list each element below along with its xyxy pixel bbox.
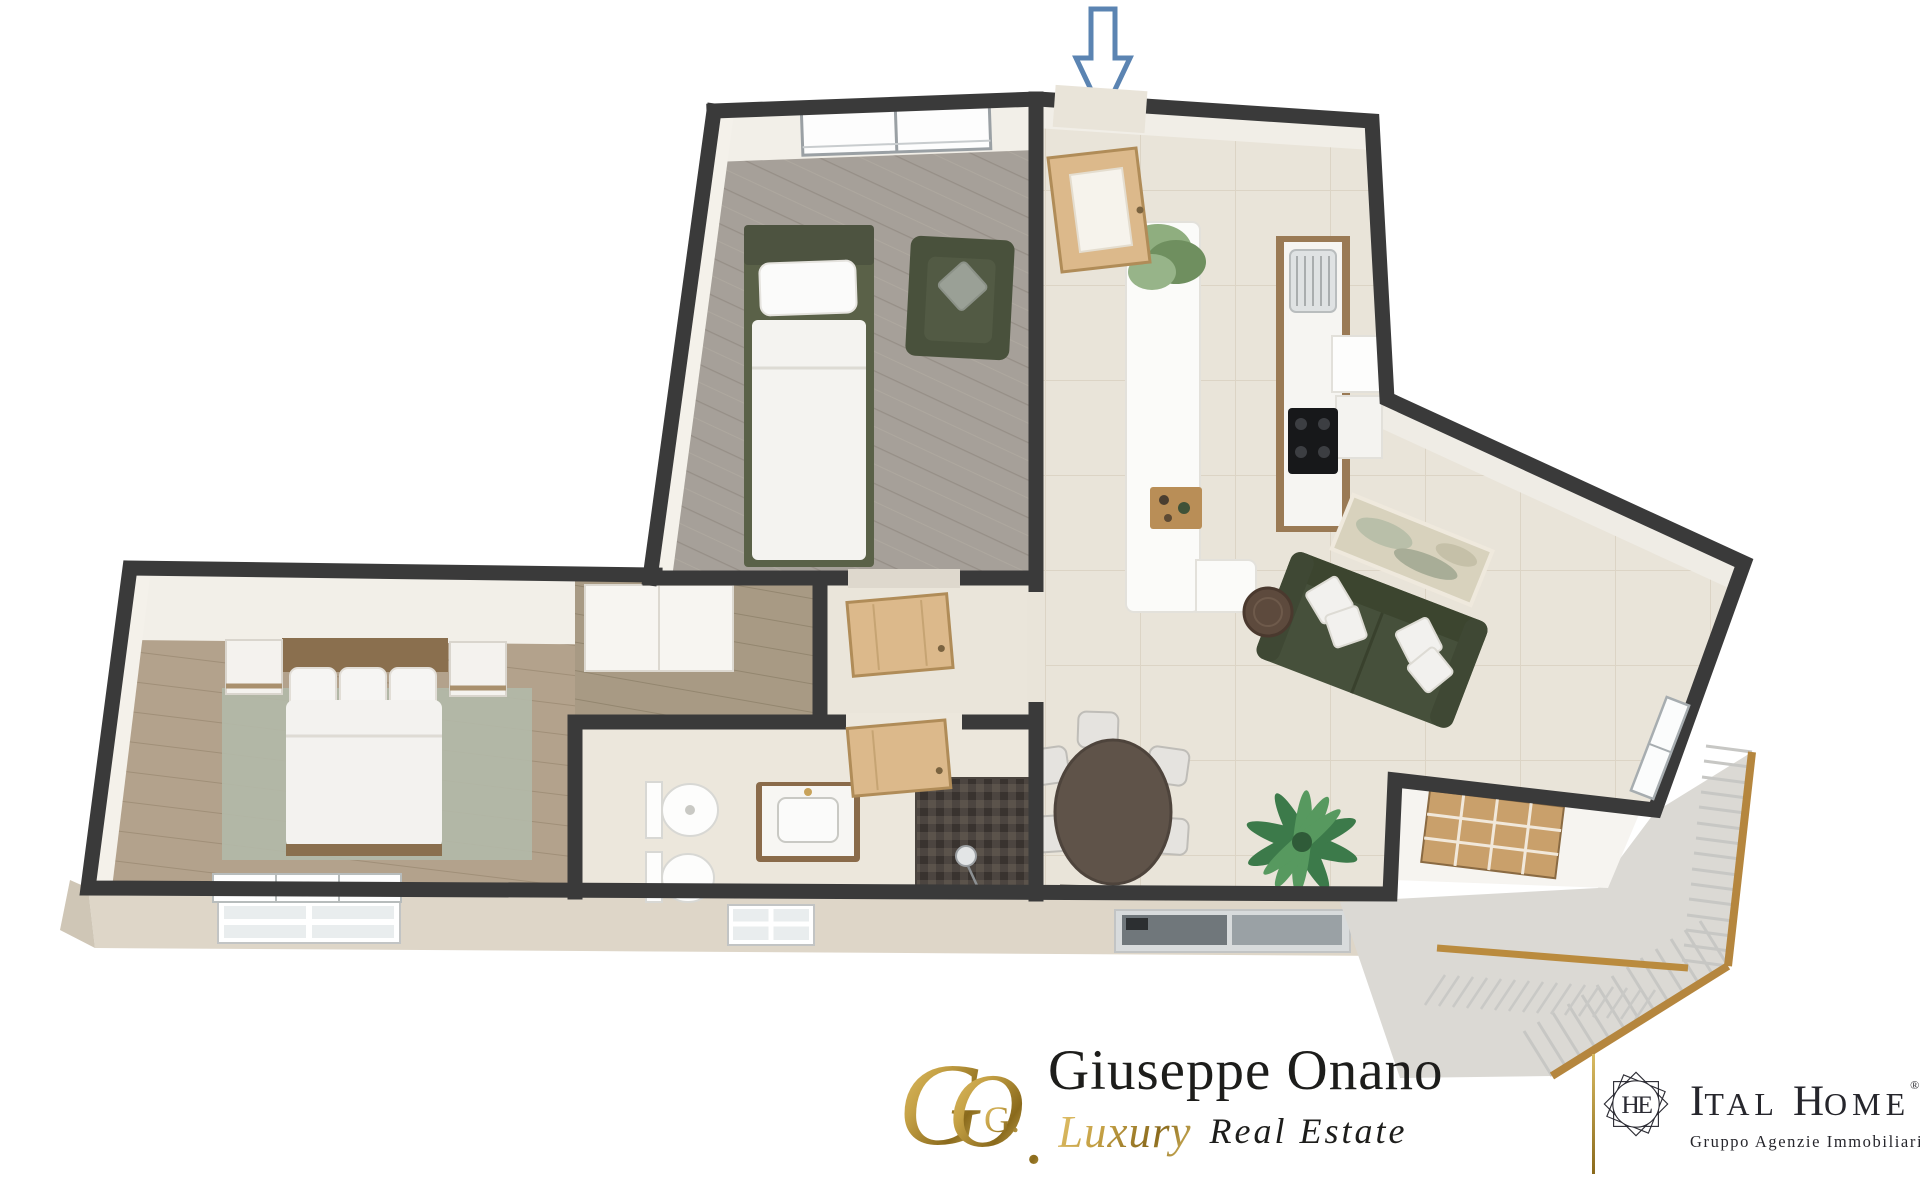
cooktop: [1288, 408, 1338, 474]
agent-name: Giuseppe Onano: [1048, 1038, 1444, 1103]
monogram-period: .: [1024, 1098, 1044, 1176]
bed-frame: [286, 844, 442, 856]
kitchen-appliance: [1336, 396, 1382, 458]
facade-window-bathroom: [728, 905, 814, 945]
cutting-board: [1150, 487, 1202, 529]
agent-monogram: G O G. .: [898, 1046, 1058, 1196]
shower: [916, 778, 1034, 896]
side-table: [1244, 588, 1292, 636]
facade-window-master: [218, 901, 400, 943]
single-bed: [744, 225, 874, 567]
bathroom-door: [847, 720, 951, 796]
bedroom2-door: [847, 594, 953, 676]
floor-plan-rendering: [0, 0, 1920, 1203]
emblem-monogram: HE: [1621, 1090, 1652, 1119]
dining-table: [1055, 740, 1171, 884]
facade-window-dining: [1115, 910, 1350, 952]
vanity-sink: [756, 782, 860, 862]
double-bed: [282, 638, 448, 856]
floor-plan-page: G O G. . Giuseppe Onano LuxuryReal Estat…: [0, 0, 1920, 1203]
agency-name-i: I: [1690, 1078, 1704, 1125]
registered-mark: ®: [1910, 1078, 1919, 1092]
kitchen-sink: [1290, 250, 1336, 312]
agent-tagline: LuxuryReal Estate: [1058, 1106, 1407, 1158]
tagline-real-estate: Real Estate: [1210, 1111, 1408, 1151]
agency-name: ITALHOME®: [1690, 1078, 1919, 1123]
bidet: [646, 782, 718, 838]
door-handle: [1137, 207, 1144, 214]
shower-head: [956, 846, 976, 866]
tagline-luxury: Luxury: [1058, 1107, 1192, 1157]
faucet: [804, 788, 812, 796]
bedroom2-opening: [848, 569, 960, 588]
duvet: [286, 700, 442, 848]
agency-name-tal: TAL: [1704, 1086, 1779, 1122]
headboard: [282, 638, 448, 672]
kitchen-appliance: [1332, 336, 1380, 392]
agency-subtitle: Gruppo Agenzie Immobiliari: [1690, 1132, 1920, 1152]
agency-name-h: H: [1793, 1078, 1824, 1125]
gold-divider: [1592, 1054, 1595, 1174]
entrance-opening: [1053, 85, 1148, 133]
vestibule-opening: [1027, 592, 1045, 702]
pillow: [759, 260, 857, 315]
hall-and-bath: [575, 578, 1036, 902]
agency-emblem: HE: [1596, 1064, 1676, 1144]
agency-name-ome: OME: [1824, 1086, 1910, 1122]
armchair: [905, 235, 1015, 360]
entrance-door: [1048, 148, 1150, 272]
monogram-inner: G.: [984, 1102, 1020, 1139]
